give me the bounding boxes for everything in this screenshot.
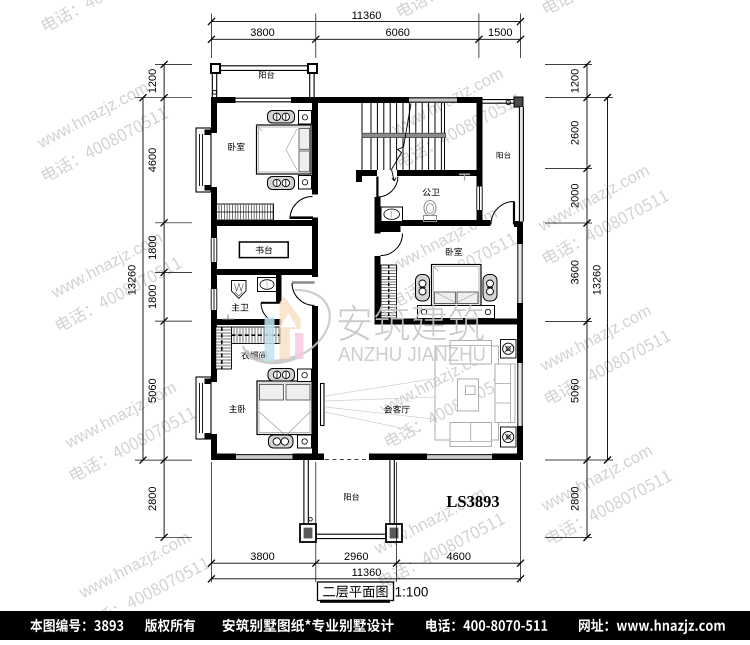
svg-text:11360: 11360 xyxy=(352,10,382,22)
svg-text:2600: 2600 xyxy=(570,121,582,145)
svg-text:1800: 1800 xyxy=(147,235,159,259)
svg-text:ANZHU JIANZHU: ANZHU JIANZHU xyxy=(338,343,486,366)
svg-text:2000: 2000 xyxy=(570,183,582,207)
svg-text:2800: 2800 xyxy=(147,486,159,510)
svg-text:6060: 6060 xyxy=(385,27,409,39)
svg-text:13260: 13260 xyxy=(127,265,139,296)
svg-text:1800: 1800 xyxy=(147,284,159,308)
svg-text:2800: 2800 xyxy=(570,486,582,510)
svg-text:LS3893: LS3893 xyxy=(446,492,499,511)
svg-text:4600: 4600 xyxy=(447,551,471,563)
svg-text:2960: 2960 xyxy=(344,551,368,563)
svg-text:1200: 1200 xyxy=(570,69,582,93)
svg-text:3800: 3800 xyxy=(250,27,274,39)
svg-text:1500: 1500 xyxy=(488,27,512,39)
svg-text:1:100: 1:100 xyxy=(395,585,429,600)
svg-text:5060: 5060 xyxy=(570,378,582,402)
svg-text:3600: 3600 xyxy=(570,260,582,284)
svg-text:3800: 3800 xyxy=(250,551,274,563)
svg-text:11360: 11360 xyxy=(352,567,382,579)
svg-text:4600: 4600 xyxy=(147,148,159,172)
svg-text:1200: 1200 xyxy=(147,69,159,93)
svg-text:13260: 13260 xyxy=(592,265,604,296)
svg-text:5060: 5060 xyxy=(147,378,159,402)
